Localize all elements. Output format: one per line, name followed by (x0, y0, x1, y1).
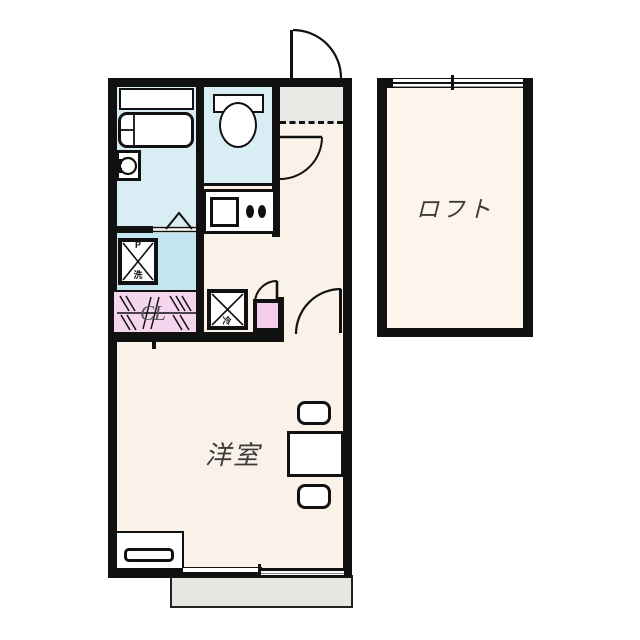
floor-plan: ロフト 洋室 CL P 洗 冷 (0, 0, 640, 640)
window-center-tick (258, 564, 261, 577)
balcony (170, 575, 353, 608)
chair-bottom (297, 484, 331, 509)
chair-top (297, 401, 331, 425)
washing-machine-label-bottom: 洗 (130, 268, 146, 280)
wall-toilet-kitchen (204, 183, 272, 186)
kitchen-sink (210, 197, 239, 227)
washbasin (116, 150, 141, 181)
refrigerator-label: 冷 (219, 314, 235, 326)
bathtub (118, 112, 194, 148)
washing-machine-label-top: P (131, 239, 145, 250)
loft-label: ロフト (405, 192, 505, 222)
stove-burner-right (258, 205, 266, 218)
bathroom-shelf (119, 88, 194, 110)
closet-label: CL (136, 300, 170, 326)
bath-door-track (153, 226, 196, 233)
loft-window-tick (451, 75, 454, 90)
western-room-label: 洋室 (183, 437, 283, 469)
dining-table (287, 431, 344, 477)
loft-window-rail (393, 82, 523, 84)
wall-tick (152, 342, 156, 349)
entrance-tile (280, 87, 343, 124)
entrance-door (292, 30, 342, 78)
stove-burner-left (246, 205, 254, 218)
wall-below-closet (108, 332, 284, 342)
window-pane-left (182, 567, 262, 573)
bay-window-counter (124, 548, 174, 562)
window-pane-right-rail (259, 573, 344, 574)
toilet-bowl (219, 102, 257, 148)
vanity-box (253, 299, 278, 332)
wall-bath-washing (108, 226, 153, 233)
